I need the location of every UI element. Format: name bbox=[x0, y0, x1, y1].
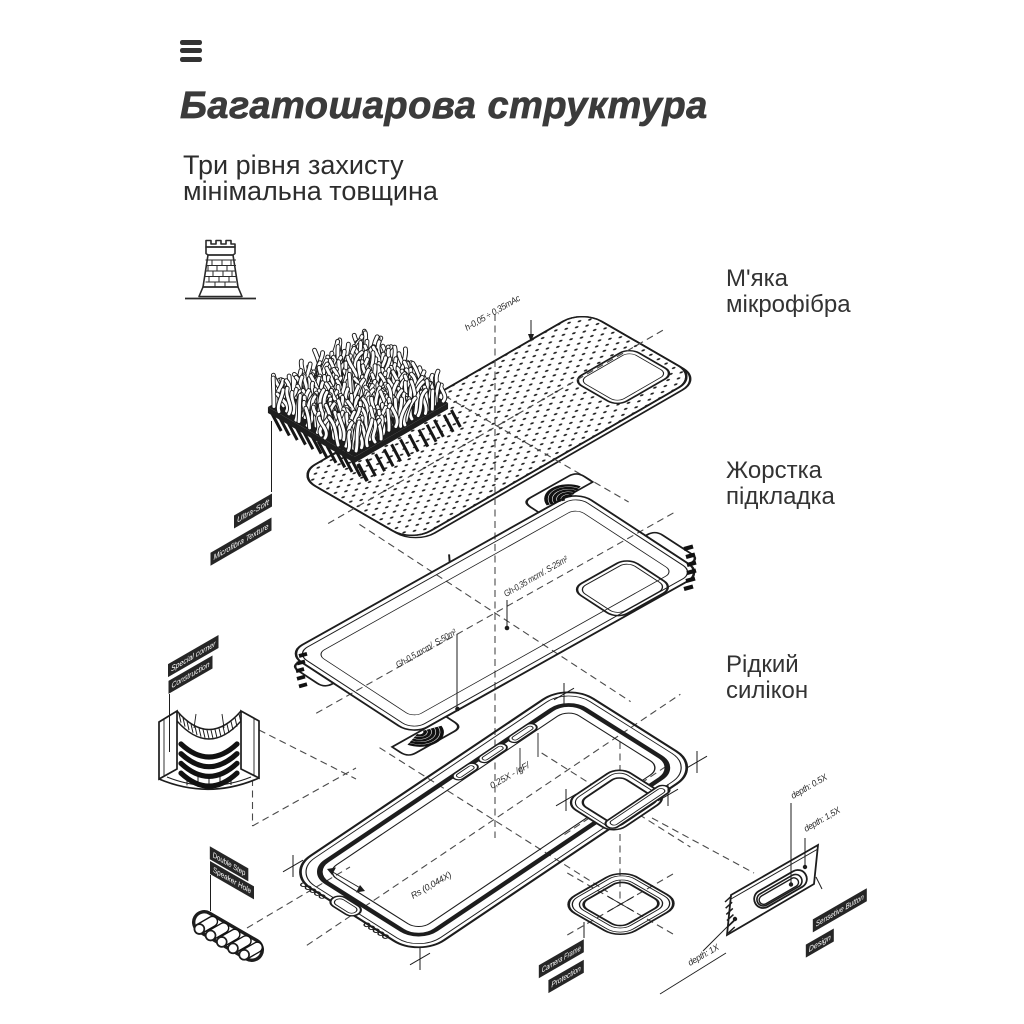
svg-text:Sensetive Button: Sensetive Button bbox=[816, 892, 864, 929]
svg-text:Rs (0,044X): Rs (0,044X) bbox=[409, 869, 453, 900]
svg-text:Design: Design bbox=[809, 932, 831, 954]
svg-text:h-0,05 ÷ 0,35mAc: h-0,05 ÷ 0,35mAc bbox=[463, 293, 522, 333]
svg-text:Gh-0,5 mcrn/. S-50m²: Gh-0,5 mcrn/. S-50m² bbox=[394, 627, 459, 670]
svg-text:depth: 1,5X: depth: 1,5X bbox=[802, 804, 843, 833]
svg-text:depth: 1X: depth: 1X bbox=[686, 941, 722, 967]
svg-text:Microfibra Texture: Microfibra Texture bbox=[214, 521, 269, 562]
svg-text:depth: 0.5X: depth: 0.5X bbox=[789, 771, 830, 800]
